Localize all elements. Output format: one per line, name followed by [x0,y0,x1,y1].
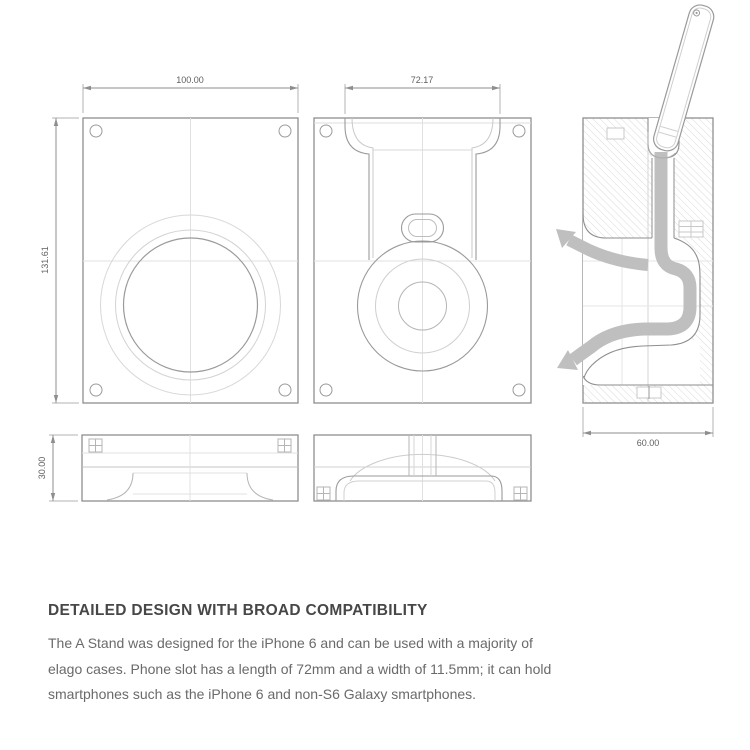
cad-drawing-svg: 100.00 131.61 [0,0,750,560]
product-detail-image: 100.00 131.61 [0,0,750,750]
front-view: 72.17 [314,75,531,403]
dim-label-base-height: 30.00 [37,457,47,480]
technical-drawing: 100.00 131.61 [0,0,750,565]
dimension-slot-width: 72.17 [345,75,500,114]
dim-label-side-depth: 60.00 [637,438,660,448]
dimension-base-height: 30.00 [37,435,78,501]
description-heading: DETAILED DESIGN WITH BROAD COMPATIBILITY [48,602,578,620]
front-base-view [314,435,531,501]
section-view: 60.00 [556,2,716,448]
rear-view: 100.00 131.61 [40,75,298,403]
rear-base-view: 30.00 [37,435,298,501]
detail-bottom-slot [637,386,661,399]
description-body: The A Stand was designed for the iPhone … [48,631,560,708]
product-description: DETAILED DESIGN WITH BROAD COMPATIBILITY… [48,602,578,708]
dimension-side-depth: 60.00 [583,407,713,448]
dimension-front-height: 131.61 [40,118,79,403]
dim-label-front-height: 131.61 [40,246,50,274]
detail-notch [607,128,624,139]
dim-label-slot-width: 72.17 [411,75,434,85]
detail-grid [679,221,703,237]
dimension-front-width: 100.00 [83,75,298,113]
dim-label-front-width: 100.00 [176,75,204,85]
